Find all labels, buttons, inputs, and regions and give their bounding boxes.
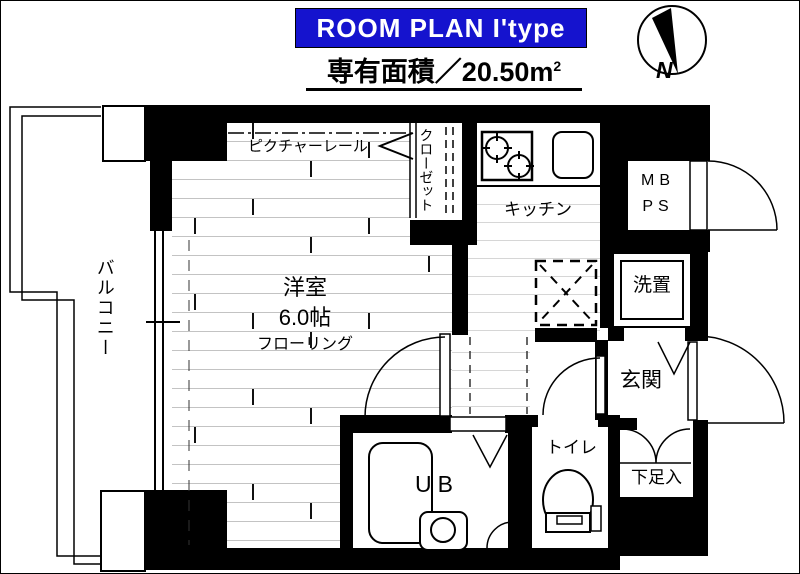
unit-bath-door-v-mark xyxy=(473,435,507,467)
window-sash xyxy=(146,231,180,490)
closet-folding-door xyxy=(446,127,453,214)
unit-bath-door-arc xyxy=(487,522,513,548)
compass-north-label: N xyxy=(656,58,673,83)
room-plan-banner-text: ROOM PLAN I'type xyxy=(317,13,566,44)
toilet-label: トイレ xyxy=(546,439,597,458)
room-name-label: 洋室 xyxy=(250,276,360,300)
entrance-label: 玄関 xyxy=(620,369,662,392)
toilet-door-arc xyxy=(543,358,600,415)
shoe-box-label: 下足入 xyxy=(620,469,693,488)
exclusive-area-text: 専有面積／20.50m2 xyxy=(306,50,582,91)
closet-frame xyxy=(410,123,416,218)
shoe-box-door-arcs xyxy=(620,429,691,463)
hall-boundary-dashed xyxy=(470,337,527,414)
meter-box-pipe-space-label: MB PS xyxy=(626,168,690,220)
room-floor-label: フローリング xyxy=(250,336,360,354)
floor-plan-page: ROOM PLAN I'type 専有面積／20.50m2 N xyxy=(0,0,800,574)
balcony-rail-inner xyxy=(22,116,101,564)
burner-ticks xyxy=(504,151,534,181)
front-door-leaf xyxy=(688,342,697,420)
toilet-lid-icon xyxy=(557,516,582,524)
meter-box-door-leaf xyxy=(690,161,707,230)
toilet-door-leaf xyxy=(596,356,605,414)
room-door-leaf xyxy=(440,334,450,416)
unit-bath-label: UB xyxy=(415,472,459,497)
balcony-label: バルコニー xyxy=(94,258,114,358)
room-door-arc xyxy=(365,337,445,417)
balcony-rail-outer xyxy=(10,107,101,556)
front-door-arc xyxy=(697,336,784,423)
burner-ticks xyxy=(482,133,512,163)
closet-door-arrow-icon xyxy=(380,133,413,159)
refrigerator-x-mark xyxy=(540,265,592,321)
room-size-label: 6.0帖 xyxy=(250,306,360,330)
picture-rail-label: ピクチャーレール xyxy=(248,139,368,156)
meter-box-door-arc xyxy=(708,161,777,230)
kitchen-label: キッチン xyxy=(504,201,572,220)
pipe-space-label: PS xyxy=(626,194,690,220)
kitchen-sink-icon xyxy=(553,132,593,178)
closet-label: クローゼット xyxy=(418,128,433,212)
washer-label: 洗置 xyxy=(620,276,684,297)
unit-bath-door-leaf xyxy=(450,417,506,431)
room-plan-banner: ROOM PLAN I'type xyxy=(295,8,587,48)
meter-box-label: MB xyxy=(626,168,690,194)
entrance-door-v-mark xyxy=(658,342,690,374)
toilet-handle-icon xyxy=(591,506,601,531)
